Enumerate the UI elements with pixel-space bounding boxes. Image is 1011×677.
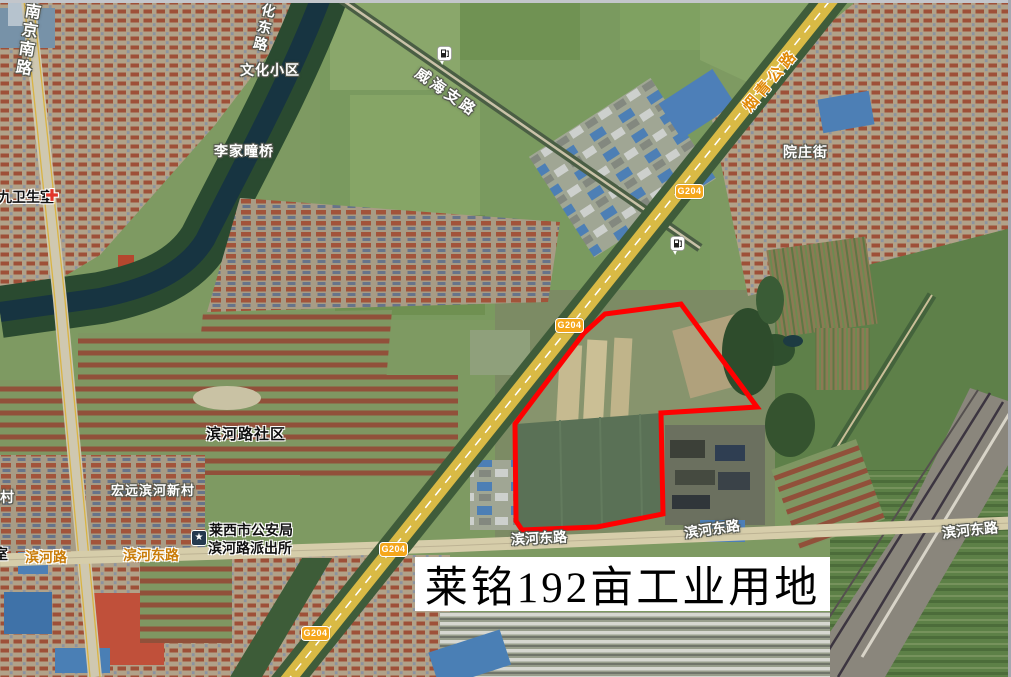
road-label-binhe-east-1: 滨河东路 <box>123 547 179 563</box>
place-label-police-line2: 滨河路派出所 <box>208 540 292 556</box>
highway-shield-g204-1: G204 <box>675 184 704 199</box>
road-label-binhe: 滨河路 <box>25 549 67 565</box>
parcel-title-text: 莱铭192亩工业用地 <box>425 553 821 615</box>
place-label-lijiatong-bridge: 李家疃桥 <box>214 143 274 159</box>
gas-station-icon-1 <box>437 46 453 71</box>
place-label-binhe-community: 滨河路社区 <box>206 426 286 443</box>
police-station-icon: ★ <box>191 530 207 546</box>
place-label-room-clipped: 室 <box>0 546 8 562</box>
road-label-yuanzhuang-street: 院庄街 <box>783 144 828 160</box>
gas-station-icon-2 <box>670 236 686 261</box>
place-label-guancun: 观村 <box>0 489 14 505</box>
highway-shield-g204-4: G204 <box>301 626 330 641</box>
place-label-police-line1: 莱西市公安局 <box>209 522 293 538</box>
clinic-cross-icon <box>45 188 59 207</box>
place-label-hongyuan-village: 宏远滨河新村 <box>111 484 195 499</box>
place-label-wenhua-community: 文化小区 <box>240 62 300 78</box>
satellite-map-view: 南京南路 文化东路 文化小区 李家疃桥 九卫生室 威海支路 烟青公路 院庄街 滨… <box>0 0 1011 677</box>
road-label-binhe-east-2: 滨河东路 <box>511 529 568 548</box>
window-frame-top <box>0 0 1011 3</box>
parcel-title-banner: 莱铭192亩工业用地 <box>415 557 830 611</box>
highway-shield-g204-3: G204 <box>379 542 408 557</box>
highway-shield-g204-2: G204 <box>555 318 584 333</box>
